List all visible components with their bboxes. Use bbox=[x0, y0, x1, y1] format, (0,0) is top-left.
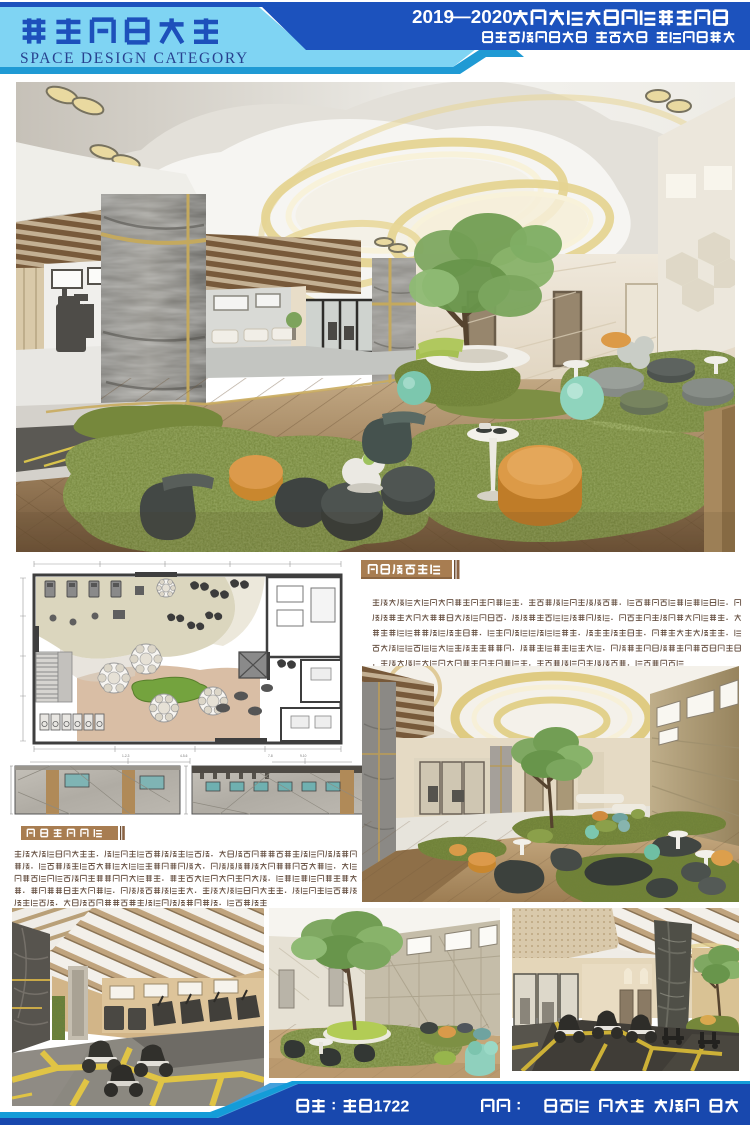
svg-text:2020: 2020 bbox=[471, 7, 513, 28]
svg-text:2019: 2019 bbox=[412, 7, 454, 28]
svg-text:1-2-3: 1-2-3 bbox=[122, 754, 130, 758]
svg-text:9-10: 9-10 bbox=[300, 754, 307, 758]
svg-text:1722: 1722 bbox=[374, 1097, 410, 1115]
svg-text:4-5-6: 4-5-6 bbox=[180, 754, 188, 758]
svg-text:SPACE DESIGN CATEGORY: SPACE DESIGN CATEGORY bbox=[20, 50, 249, 67]
svg-text:7-8: 7-8 bbox=[268, 754, 273, 758]
